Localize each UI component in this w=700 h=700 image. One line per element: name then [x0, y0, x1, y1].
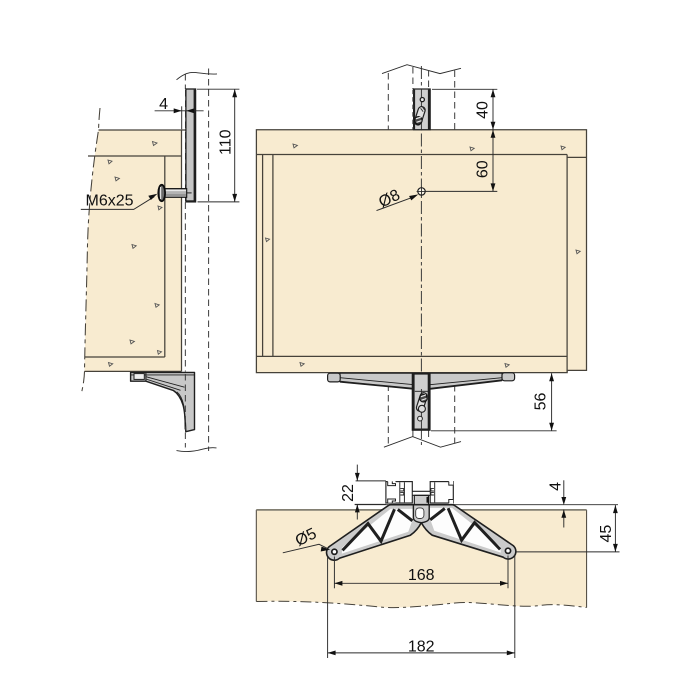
svg-text:M6x25: M6x25	[86, 192, 134, 209]
svg-text:60: 60	[474, 160, 491, 178]
svg-text:40: 40	[474, 101, 491, 119]
svg-text:182: 182	[408, 639, 435, 656]
svg-text:4: 4	[159, 96, 168, 113]
svg-text:22: 22	[340, 484, 357, 502]
svg-text:56: 56	[533, 393, 550, 411]
svg-text:110: 110	[218, 129, 235, 155]
svg-text:168: 168	[408, 567, 435, 584]
svg-text:45: 45	[598, 525, 615, 543]
svg-text:4: 4	[548, 482, 565, 491]
